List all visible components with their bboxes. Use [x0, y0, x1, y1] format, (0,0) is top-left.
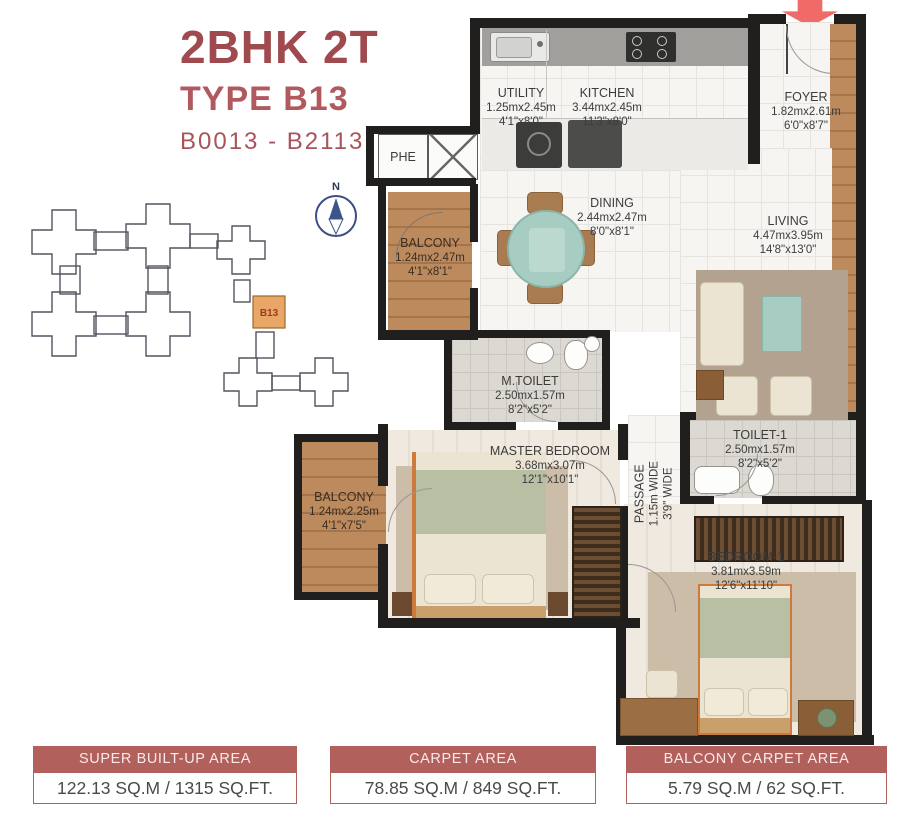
room-dim-m: 2.44mx2.47m: [556, 211, 668, 225]
desk-chair: [646, 670, 678, 698]
north-compass-icon: N: [316, 181, 356, 236]
wall: [680, 496, 714, 504]
room-dim-m: 1.24mx2.25m: [298, 505, 390, 519]
unit-range: B0013 - B2113: [180, 130, 379, 154]
room-dim-ft: 6'0"x8'7": [754, 119, 858, 133]
wall: [748, 14, 760, 164]
stat-carpet-area: CARPET AREA 78.85 SQ.M / 849 SQ.FT.: [330, 746, 596, 804]
sofa: [700, 282, 744, 366]
wall: [470, 184, 478, 242]
wall: [762, 496, 866, 504]
kitchen-sink: [490, 32, 550, 62]
wall: [602, 330, 610, 430]
room-dim-ft: 12'6"x11'10": [672, 579, 820, 593]
coffee-table: [762, 296, 802, 352]
wall: [862, 500, 872, 745]
room-label-master-bedroom: MASTER BEDROOM 3.68mx3.07m 12'1"x10'1": [468, 444, 632, 487]
wall: [446, 422, 516, 430]
kitchen-stove: [626, 32, 676, 62]
keyplan-highlight-unit: B13: [253, 296, 285, 328]
room-label-living: LIVING 4.47mx3.95m 14'8"x13'0": [726, 214, 850, 257]
room-dim-m: 4.47mx3.95m: [726, 229, 850, 243]
pillow: [482, 574, 534, 604]
wall: [294, 434, 388, 442]
pillow: [748, 688, 788, 716]
wall: [558, 422, 610, 430]
side-table: [798, 700, 854, 736]
shaft-x-icon: [428, 134, 478, 180]
wall: [444, 330, 452, 430]
phe-shaft: PHE: [378, 134, 428, 180]
room-dim-ft: 3'9" WIDE: [662, 434, 676, 554]
wall: [294, 592, 388, 600]
room-dim-ft: 12'1"x10'1": [468, 473, 632, 487]
room-label-passage: PASSAGE 1.15m WIDE 3'9" WIDE: [632, 434, 675, 554]
stat-balcony-carpet-area: BALCONY CARPET AREA 5.79 SQ.M / 62 SQ.FT…: [626, 746, 887, 804]
wall: [378, 618, 640, 628]
room-dim-m: 2.50mx1.57m: [698, 443, 822, 457]
plant-icon: [817, 708, 837, 728]
room-dim-m: 2.50mx1.57m: [468, 389, 592, 403]
room-name: MASTER BEDROOM: [468, 444, 632, 459]
plan-type: TYPE B13: [180, 82, 379, 116]
room-name: DINING: [556, 196, 668, 211]
room-dim-m: 3.68mx3.07m: [468, 459, 632, 473]
room-name: LIVING: [726, 214, 850, 229]
room-label-balcony-top: BALCONY 1.24mx2.47m 4'1"x8'1": [384, 236, 476, 279]
bedroom-1-bed: [698, 584, 792, 735]
washbasin: [526, 342, 554, 364]
plan-title: 2BHK 2T: [180, 24, 379, 70]
stat-value: 78.85 SQ.M / 849 SQ.FT.: [330, 773, 596, 804]
wall: [856, 14, 866, 424]
room-name: FOYER: [754, 90, 858, 105]
room-name: PHE: [379, 150, 427, 165]
room-dim-ft: 11'3"x8'0": [552, 115, 662, 129]
stat-value: 5.79 SQ.M / 62 SQ.FT.: [626, 773, 887, 804]
room-dim-m: 1.15m WIDE: [648, 434, 662, 554]
stat-label: SUPER BUILT-UP AREA: [33, 746, 297, 773]
room-label-bedroom-1: BEDROOM-1 3.81mx3.59m 12'6"x11'10": [672, 550, 820, 593]
title-block: 2BHK 2T TYPE B13 B0013 - B2113: [180, 24, 379, 154]
room-dim-m: 3.44mx2.45m: [552, 101, 662, 115]
room-name: BALCONY: [298, 490, 390, 505]
room-dim-ft: 8'2"x5'2": [698, 457, 822, 471]
room-label-master-toilet: M.TOILET 2.50mx1.57m 8'2"x5'2": [468, 374, 592, 417]
room-label-kitchen: KITCHEN 3.44mx2.45m 11'3"x8'0": [552, 86, 662, 129]
room-label-dining: DINING 2.44mx2.47m 8'0"x8'1": [556, 196, 668, 239]
site-outline-graphic: B13 N: [6, 174, 366, 416]
stat-value: 122.13 SQ.M / 1315 SQ.FT.: [33, 773, 297, 804]
nightstand: [392, 592, 412, 616]
room-label-balcony-mid: BALCONY 1.24mx2.25m 4'1"x7'5": [298, 490, 390, 533]
room-dim-ft: 4'1"x7'5": [298, 519, 390, 533]
wall: [856, 412, 866, 504]
pillow: [424, 574, 476, 604]
nightstand: [548, 592, 568, 616]
shower-drain: [584, 336, 600, 352]
stat-label: BALCONY CARPET AREA: [626, 746, 887, 773]
room-name: M.TOILET: [468, 374, 592, 389]
compass-n-label: N: [332, 181, 340, 193]
stat-label: CARPET AREA: [330, 746, 596, 773]
desk: [620, 698, 698, 736]
room-name: BEDROOM-1: [672, 550, 820, 565]
keyplan-unit-label: B13: [260, 308, 279, 319]
key-plan: B13 N: [6, 174, 366, 416]
wall: [366, 126, 374, 186]
room-name: TOILET-1: [698, 428, 822, 443]
room-dim-m: 1.24mx2.47m: [384, 251, 476, 265]
wall: [680, 412, 690, 504]
master-wardrobe: [572, 506, 622, 618]
room-dim-ft: 8'2"x5'2": [468, 403, 592, 417]
wall: [616, 735, 874, 745]
wall: [760, 14, 786, 24]
room-dim-m: 3.81mx3.59m: [672, 565, 820, 579]
wall: [446, 330, 610, 338]
room-name: PASSAGE: [632, 434, 647, 554]
wall: [368, 126, 476, 134]
floor-plan-page: 2BHK 2T TYPE B13 B0013 - B2113: [0, 0, 900, 822]
stat-super-built-up-area: SUPER BUILT-UP AREA 122.13 SQ.M / 1315 S…: [33, 746, 297, 804]
room-label-toilet-1: TOILET-1 2.50mx1.57m 8'2"x5'2": [698, 428, 822, 471]
room-label-phe: PHE: [379, 150, 427, 165]
wall: [378, 544, 388, 628]
room-dim-ft: 4'1"x8'1": [384, 265, 476, 279]
room-name: BALCONY: [384, 236, 476, 251]
side-table: [696, 370, 724, 400]
room-dim-ft: 14'8"x13'0": [726, 243, 850, 257]
room-name: KITCHEN: [552, 86, 662, 101]
room-dim-m: 1.82mx2.61m: [754, 105, 858, 119]
room-label-foyer: FOYER 1.82mx2.61m 6'0"x8'7": [754, 90, 858, 133]
wall: [474, 18, 760, 28]
pillow: [704, 688, 744, 716]
room-dim-ft: 8'0"x8'1": [556, 225, 668, 239]
armchair: [770, 376, 812, 416]
